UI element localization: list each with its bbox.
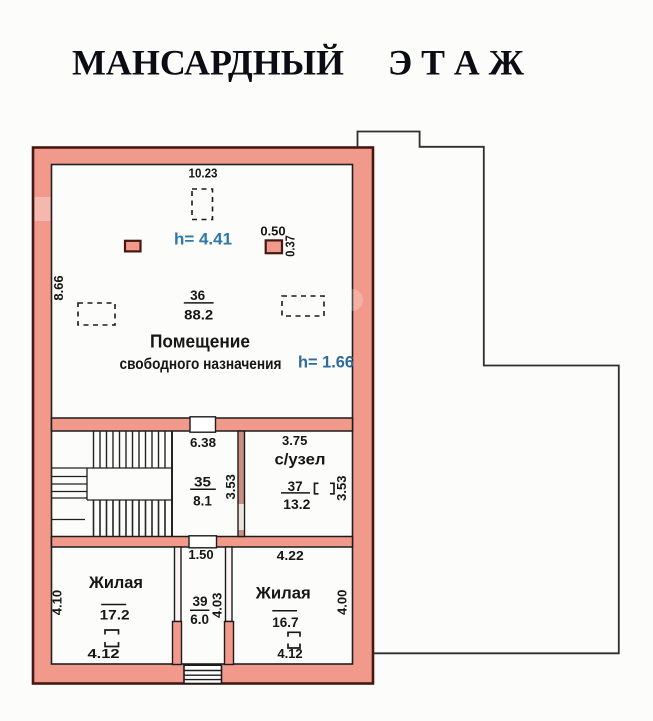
svg-text:16.7: 16.7 xyxy=(272,615,298,630)
svg-text:1.50: 1.50 xyxy=(188,547,213,562)
svg-text:Э Т А Ж: Э Т А Ж xyxy=(388,43,525,83)
svg-text:39: 39 xyxy=(192,594,207,609)
svg-text:6.0: 6.0 xyxy=(190,612,209,627)
svg-text:4.12: 4.12 xyxy=(88,646,120,661)
svg-text:4.10: 4.10 xyxy=(50,590,65,615)
svg-text:МАНСАРДНЫЙ: МАНСАРДНЫЙ xyxy=(72,43,344,83)
svg-text:6.38: 6.38 xyxy=(190,435,216,450)
svg-text:88.2: 88.2 xyxy=(184,308,213,323)
svg-text:h= 1.66: h= 1.66 xyxy=(298,353,354,372)
svg-text:свободного назначения: свободного назначения xyxy=(120,356,282,373)
svg-text:4.22: 4.22 xyxy=(277,548,304,563)
svg-text:4.12: 4.12 xyxy=(277,646,302,661)
svg-text:3.53: 3.53 xyxy=(334,476,349,501)
svg-text:Помещение: Помещение xyxy=(150,332,250,352)
svg-text:37: 37 xyxy=(288,479,303,494)
svg-text:0.37: 0.37 xyxy=(283,235,298,257)
svg-text:4.00: 4.00 xyxy=(335,590,350,615)
svg-text:35: 35 xyxy=(194,475,212,490)
svg-text:Жилая: Жилая xyxy=(255,584,311,603)
svg-text:4.03: 4.03 xyxy=(210,593,225,618)
svg-text:10.23: 10.23 xyxy=(189,166,218,181)
svg-text:Жилая: Жилая xyxy=(88,573,143,592)
svg-text:с/узел: с/узел xyxy=(275,452,326,469)
svg-text:3.53: 3.53 xyxy=(223,474,238,499)
svg-text:8.1: 8.1 xyxy=(193,494,212,509)
svg-text:36: 36 xyxy=(190,288,206,303)
svg-text:13.2: 13.2 xyxy=(283,497,310,512)
svg-text:h= 4.41: h= 4.41 xyxy=(174,230,232,249)
svg-text:3.75: 3.75 xyxy=(282,433,307,448)
svg-text:8.66: 8.66 xyxy=(51,275,66,300)
svg-text:17.2: 17.2 xyxy=(100,607,130,622)
